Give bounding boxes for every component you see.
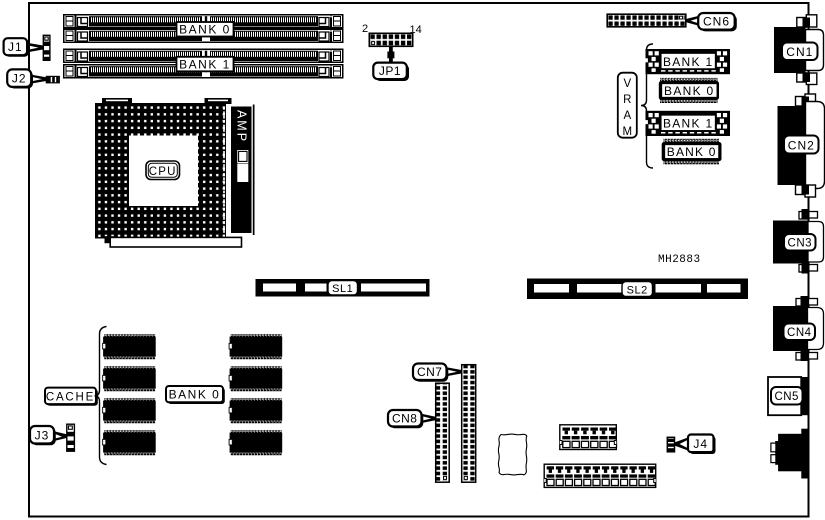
svg-text:CN8: CN8 — [392, 412, 418, 426]
svg-text:JP1: JP1 — [379, 64, 401, 78]
svg-text:BANK 1: BANK 1 — [179, 57, 231, 71]
svg-text:CACHE: CACHE — [46, 391, 95, 403]
svg-text:BANK 1: BANK 1 — [663, 117, 714, 131]
svg-text:J3: J3 — [35, 428, 50, 442]
svg-text:J2: J2 — [12, 72, 27, 86]
svg-text:R: R — [623, 94, 631, 106]
svg-text:A: A — [623, 110, 631, 122]
svg-text:CN5: CN5 — [774, 391, 799, 403]
svg-text:AMP: AMP — [235, 110, 249, 143]
svg-text:CN2: CN2 — [788, 138, 815, 152]
svg-text:BANK 0: BANK 0 — [169, 388, 221, 402]
svg-text:V: V — [623, 78, 631, 90]
svg-text:BANK 0: BANK 0 — [179, 23, 231, 37]
svg-text:M: M — [623, 126, 633, 138]
svg-text:BANK 0: BANK 0 — [667, 145, 717, 159]
svg-text:SL2: SL2 — [627, 284, 648, 296]
svg-text:CN7: CN7 — [417, 365, 443, 379]
svg-text:CN1: CN1 — [786, 45, 813, 59]
svg-text:J1: J1 — [8, 40, 23, 54]
svg-text:CN6: CN6 — [703, 15, 730, 29]
svg-text:BANK 1: BANK 1 — [663, 55, 714, 69]
svg-text:BANK 0: BANK 0 — [664, 84, 715, 98]
svg-text:SL1: SL1 — [332, 283, 353, 295]
svg-text:2: 2 — [362, 23, 368, 35]
svg-text:CPU: CPU — [149, 166, 177, 178]
svg-text:J4: J4 — [693, 437, 708, 451]
svg-text:MH2883: MH2883 — [658, 254, 701, 266]
svg-text:CN3: CN3 — [788, 238, 813, 250]
svg-text:CN4: CN4 — [787, 327, 812, 339]
